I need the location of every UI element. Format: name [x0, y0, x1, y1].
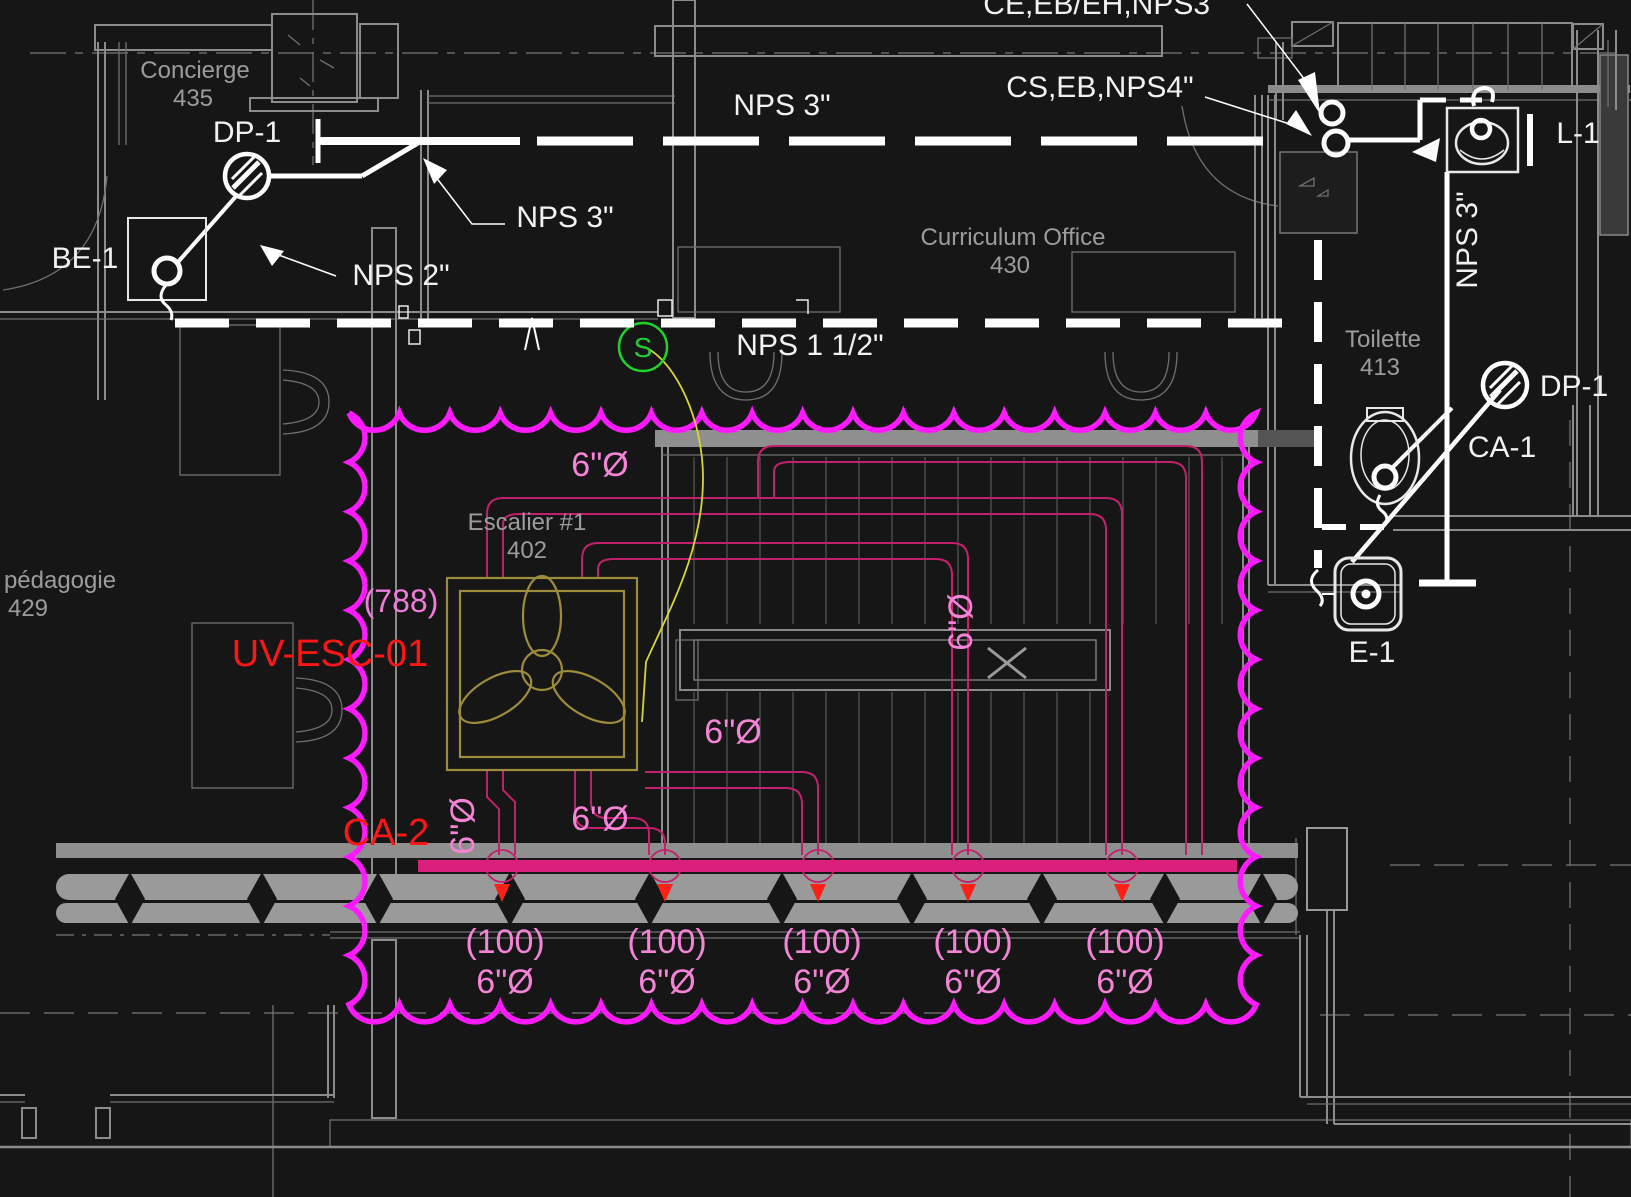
label-nps2: NPS 2" [352, 259, 449, 292]
duct-main-run [418, 860, 1237, 872]
diffuser-flow: (100) [627, 923, 706, 961]
room-name-concierge: Concierge [140, 57, 249, 84]
label-nps1-5: NPS 1 1/2" [736, 329, 883, 362]
wall-hatched-block [360, 24, 398, 98]
diffuser-size: 6"Ø [944, 963, 1001, 1001]
door-swing-arc-curriculum [1182, 106, 1278, 206]
door-jamb [22, 1108, 36, 1138]
label-ca2: CA-2 [343, 812, 430, 854]
label-nps3-left: NPS 3" [516, 201, 613, 234]
appliance-box [272, 14, 357, 102]
label-l1: L-1 [1556, 117, 1599, 150]
be1-connection [154, 258, 180, 284]
desk [1072, 252, 1235, 312]
leader-cs-eb [1205, 97, 1312, 136]
diffuser-flow: (100) [465, 923, 544, 961]
label-cs-eb-nps4: CS,EB,NPS4" [1006, 71, 1193, 104]
desk [180, 325, 280, 475]
chair [1105, 352, 1177, 400]
diffuser-flow: (100) [782, 923, 861, 961]
leader-nps2 [260, 245, 336, 276]
fan-blades [451, 576, 633, 733]
room-number-pedagogie: 429 [8, 595, 48, 622]
stair-treads [694, 457, 1222, 848]
floor-drain-dp1-right [1483, 363, 1527, 407]
label-ca1: CA-1 [1468, 431, 1536, 464]
chair [296, 678, 342, 742]
room-number-toilette: 413 [1360, 354, 1400, 381]
label-uv-esc-01: UV-ESC-01 [232, 633, 428, 675]
label-duct-6dia-vert-stair: 6"Ø [942, 593, 980, 650]
toilet-fixture [1351, 408, 1419, 525]
label-duct-6dia-low: 6"Ø [571, 800, 628, 838]
pipe-riser [1321, 102, 1343, 124]
cad-canvas[interactable]: Concierge 435 DP-1 BE-1 NPS 3" NPS 2" NP… [0, 0, 1631, 1197]
label-dp1-right: DP-1 [1540, 370, 1608, 403]
label-ce-eb-eh-nps3: CE,EB/EH,NPS3" [983, 0, 1220, 21]
label-airflow-788: (788) [364, 583, 439, 619]
room-name-toilette: Toilette [1345, 326, 1421, 353]
desk [678, 247, 840, 312]
e1-fixture [1322, 558, 1401, 630]
label-duct-6dia-top: 6"Ø [571, 446, 628, 484]
label-dp1-left: DP-1 [213, 116, 281, 149]
room-number-concierge: 435 [173, 85, 213, 112]
label-duct-6dia-vert-left: 6"Ø [444, 797, 482, 854]
room-name-curriculum: Curriculum Office [921, 224, 1106, 251]
room-name-escalier: Escalier #1 [468, 509, 587, 536]
label-nps3-top: NPS 3" [733, 89, 830, 122]
label-e1: E-1 [1349, 636, 1396, 669]
diffuser-flow: (100) [1085, 923, 1164, 961]
stair-landing-rail [680, 630, 1110, 690]
wall-hatched-band-top [655, 26, 1162, 56]
label-nps3-vertical: NPS 3" [1451, 191, 1484, 288]
label-switch-s: S [634, 332, 653, 363]
room-number-curriculum: 430 [990, 252, 1030, 279]
wall-hatched-band-topleft [95, 25, 272, 50]
label-duct-6dia-mid: 6"Ø [704, 713, 761, 751]
exterior-wall-column [1600, 55, 1628, 235]
diffuser-flow: (100) [933, 923, 1012, 961]
fan-unit-uv-esc-01 [447, 576, 637, 770]
furniture [180, 247, 1235, 788]
diffuser-size: 6"Ø [793, 963, 850, 1001]
room-name-pedagogie: pédagogie [4, 567, 116, 594]
door-jamb [96, 1108, 110, 1138]
corridor-strip-upper [655, 430, 1258, 447]
wall-hatched-strip-curriculum [673, 0, 695, 318]
room-number-escalier: 402 [507, 537, 547, 564]
floor-drain-dp1-left [225, 154, 269, 198]
leader-nps3-left [423, 158, 505, 224]
stair-escalier-1 [655, 430, 1320, 855]
diffuser-size: 6"Ø [476, 963, 533, 1001]
pipe-chase [1280, 152, 1357, 233]
label-be1: BE-1 [52, 242, 119, 275]
chair [283, 370, 329, 434]
counter-shelf [250, 98, 378, 111]
floor-plan-drawing: Concierge 435 DP-1 BE-1 NPS 3" NPS 2" NP… [0, 0, 1631, 1197]
diffuser-size: 6"Ø [1096, 963, 1153, 1001]
diffuser-size: 6"Ø [638, 963, 695, 1001]
structural-column [1307, 828, 1347, 910]
casework-lockers [1258, 22, 1616, 120]
